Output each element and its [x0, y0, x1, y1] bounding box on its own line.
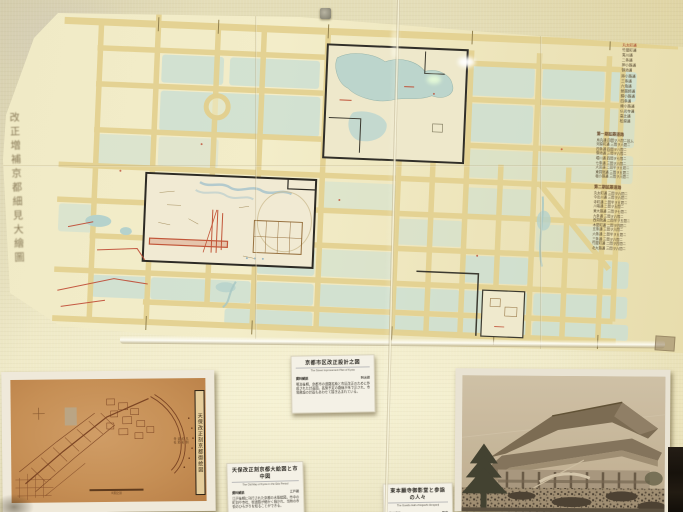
temple-photograph [455, 368, 671, 512]
paper-crease [0, 165, 683, 167]
card-body-text: 明治後期、京都市の道路拡築と市区改正のために作成された計画図。拡築予定の路線が朱… [296, 381, 370, 395]
note-line: 町名 [181, 437, 186, 493]
light-glare [392, 30, 397, 58]
map-notes-block-1: 第一期拡築道路 烏丸通 四間ヲ八間ニ拡ム河原町通 三間ヲ六間ニ四条通 四間ヲ八間… [595, 132, 655, 181]
sepia-map-print: 天保改正刻京都御絵図 凡例町名道筋寺社 町間之割 [1, 370, 215, 512]
paper-crease [255, 0, 257, 352]
sepia-map-cartouche-title: 天保改正刻京都御絵図 [194, 390, 205, 495]
temple-photo-image [462, 375, 666, 512]
card-period-label: 江戸期 [290, 488, 299, 493]
sepia-map-scale-bar: 町間之割 [89, 488, 143, 495]
card-period-label: 明治期 [361, 374, 370, 379]
card-body-text: 江戸後期に刊行された京都の木版絵図。市中の町割や寺社、街道筋が細かく描かれ、当時… [232, 495, 299, 509]
card-subtitle-en: The Street Improvement Plan of Kyoto [296, 368, 370, 372]
scale-bar [89, 488, 143, 491]
caption-card-street-plan: 京都市区改正設計之図 The Street Improvement Plan o… [291, 354, 376, 413]
sepia-map-note: 凡例町名道筋寺社 [169, 437, 190, 493]
note-line: 道筋 [177, 437, 182, 493]
museum-exhibit-photo: 改正増補京都細見大繪圖 丸太町通竹屋町通夷川通二条通押小路通御池通姉小路通三条通… [0, 0, 683, 512]
card-title: 天保改正刻京都大絵図と市中図 [231, 465, 298, 483]
tape-piece [655, 335, 676, 351]
map-legend-street-list: 丸太町通竹屋町通夷川通二条通押小路通御池通姉小路通三条通六角通蛸薬師通錦小路通四… [620, 43, 675, 126]
light-glare [427, 75, 441, 84]
map-notes-block-2: 第二期拡築道路 丸太町通 三間ヲ六間ニ今出川通 三間ヲ六間ニ寺町通 二間半ヲ五間… [592, 185, 654, 252]
note-line: 凡例 [185, 437, 190, 493]
scale-label: 町間之割 [111, 492, 121, 495]
card-heading: 資料解説 [296, 375, 308, 380]
card-subtitle-en: The Goeido Hall of Higashi-Honganji [388, 503, 448, 507]
map-pin [320, 8, 331, 19]
dark-framed-item [668, 447, 683, 512]
light-glare [458, 57, 475, 67]
caption-card-edo-map: 天保改正刻京都大絵図と市中図 The Old Map of Kyoto in t… [226, 461, 304, 512]
temple-photo-art [462, 375, 666, 512]
corner-shadow [0, 494, 34, 512]
card-heading: 資料解説 [232, 490, 245, 495]
note-line: 寺社 [173, 437, 178, 493]
caption-card-temple-photo: 東本願寺御影堂と参詣の人々 The Goeido Hall of Higashi… [383, 482, 454, 512]
card-subtitle-en: The Old Map of Kyoto in the Edo Period [232, 482, 299, 487]
card-title: 東本願寺御影堂と参詣の人々 [388, 486, 448, 503]
sepia-map-image: 天保改正刻京都御絵図 凡例町名道筋寺社 町間之割 [10, 378, 206, 503]
